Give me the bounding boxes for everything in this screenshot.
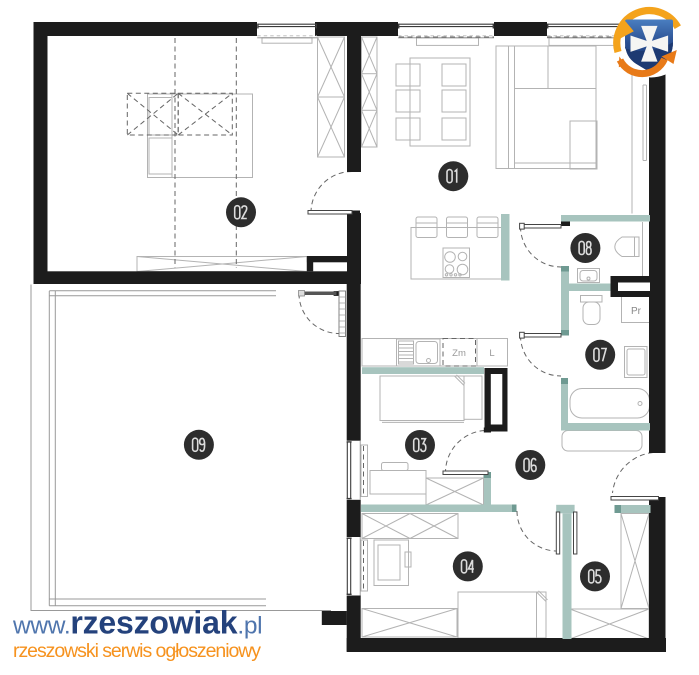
svg-text:L: L [489,348,494,359]
svg-text:rzeszowski serwis ogłoszeniowy: rzeszowski serwis ogłoszeniowy [13,640,261,662]
svg-text:Zm: Zm [452,348,466,359]
svg-text:Pr: Pr [631,306,642,317]
